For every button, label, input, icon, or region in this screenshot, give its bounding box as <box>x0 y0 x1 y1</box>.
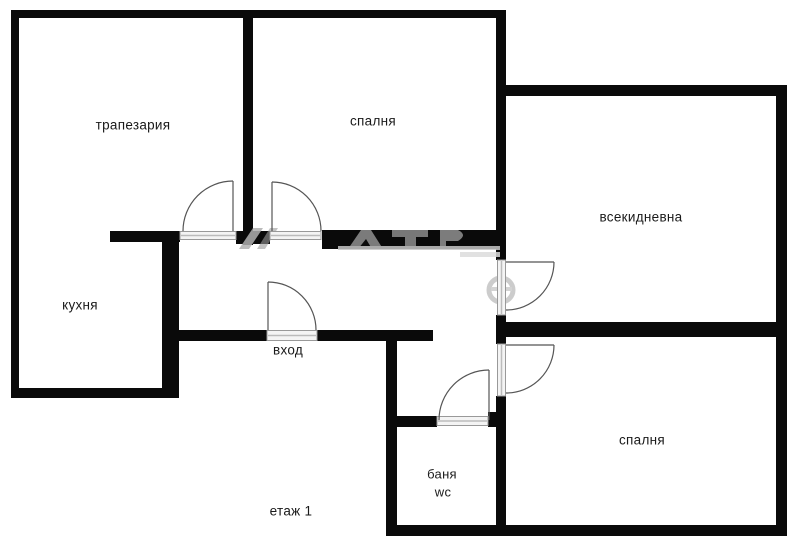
wall-bath-top <box>396 416 437 427</box>
entrance-door <box>268 282 316 330</box>
room-label-bathroom: баня <box>427 467 457 482</box>
wall-bedroom-bottom-left <box>496 396 506 536</box>
bedroom-top-door <box>272 182 321 231</box>
door-arc <box>506 345 554 393</box>
room-label-bedroom-bottom: спалня <box>619 433 665 448</box>
watermark-fragment <box>392 230 428 237</box>
floor-plan-drawing <box>0 0 800 548</box>
watermark-fragment <box>460 252 500 257</box>
floor-plan: трапезария спалня всекидневна кухня вход… <box>0 0 800 548</box>
wall-bottom <box>386 525 787 536</box>
door-arc <box>439 370 489 420</box>
room-label-entrance: вход <box>273 343 303 358</box>
door-arc <box>272 182 321 231</box>
dining-door <box>183 181 233 231</box>
wall-kitchen-right <box>162 231 179 398</box>
walls <box>11 10 787 536</box>
room-label-kitchen: кухня <box>62 298 98 313</box>
bedroom-bottom-door <box>506 345 554 393</box>
wall-kitchen-bottom <box>11 388 173 398</box>
threshold-midlines <box>181 236 502 422</box>
wall-left <box>11 10 19 398</box>
watermark-fragment <box>338 246 500 250</box>
bathroom-door <box>439 370 489 420</box>
wall-living-bedroom-divider <box>496 322 787 337</box>
thresholds <box>180 232 506 426</box>
wall-living-top <box>505 85 787 96</box>
wall-hall-right-upper <box>496 10 506 260</box>
room-label-dining: трапезария <box>96 118 171 133</box>
wall-bath-left <box>386 330 397 536</box>
wall-top <box>11 10 506 18</box>
wall-corridor-bottom-left <box>162 330 267 341</box>
door-arc <box>268 282 316 330</box>
wall-right <box>776 85 787 536</box>
door-arc <box>183 181 233 231</box>
wall-corridor-bottom-right <box>317 330 433 341</box>
room-label-wc: wc <box>435 485 452 500</box>
room-label-bedroom-top: спалня <box>350 114 396 129</box>
floor-number-label: етаж 1 <box>270 504 313 519</box>
wall-dining-bedroom-divider <box>243 10 253 245</box>
room-label-living-room: всекидневна <box>599 210 682 225</box>
